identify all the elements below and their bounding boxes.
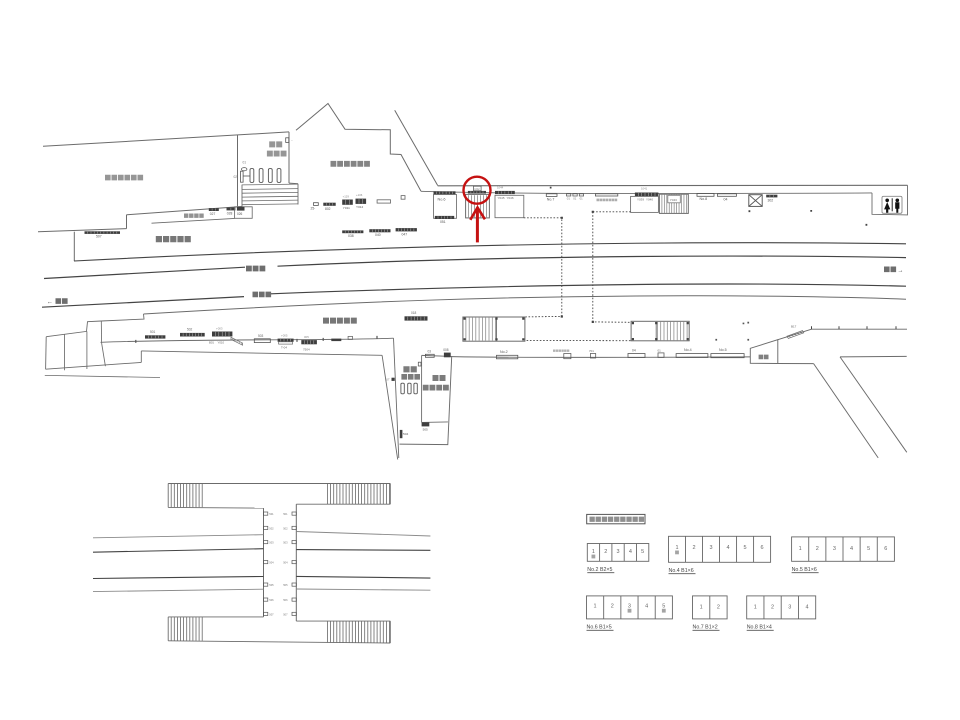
svg-text:2: 2 bbox=[692, 545, 695, 551]
svg-text:504: 504 bbox=[269, 561, 274, 565]
svg-text:302: 302 bbox=[768, 198, 774, 202]
svg-text:01: 01 bbox=[658, 348, 662, 352]
svg-text:502: 502 bbox=[269, 526, 274, 530]
svg-text:5: 5 bbox=[744, 545, 747, 551]
svg-text:No.6: No.6 bbox=[438, 198, 446, 202]
svg-text:1: 1 bbox=[754, 604, 757, 610]
svg-text:No.2: No.2 bbox=[500, 350, 508, 354]
svg-text:1: 1 bbox=[700, 604, 703, 610]
svg-text:506: 506 bbox=[269, 598, 274, 602]
svg-text:6: 6 bbox=[884, 546, 887, 552]
svg-text:4: 4 bbox=[629, 549, 632, 555]
svg-text:No.4 B1×6: No.4 B1×6 bbox=[669, 568, 694, 574]
svg-text:03: 03 bbox=[428, 350, 432, 354]
svg-text:503: 503 bbox=[283, 541, 288, 545]
svg-text:01: 01 bbox=[580, 197, 584, 201]
svg-text:505: 505 bbox=[423, 428, 428, 432]
svg-text:502: 502 bbox=[187, 328, 193, 332]
svg-text:505: 505 bbox=[269, 583, 274, 587]
svg-text:Y039: Y039 bbox=[637, 198, 644, 202]
svg-text:028: 028 bbox=[227, 211, 233, 215]
svg-text:504: 504 bbox=[283, 561, 288, 565]
svg-text:←: ← bbox=[47, 300, 53, 306]
svg-text:1: 1 bbox=[799, 546, 802, 552]
svg-text:1041: 1041 bbox=[641, 187, 648, 191]
svg-text:506: 506 bbox=[283, 598, 288, 602]
svg-text:Y045: Y045 bbox=[498, 196, 505, 200]
svg-text:01: 01 bbox=[243, 161, 247, 165]
svg-text:No.8: No.8 bbox=[700, 197, 708, 201]
svg-text:3: 3 bbox=[833, 546, 836, 552]
svg-text:25-: 25- bbox=[311, 207, 316, 211]
svg-text:005: 005 bbox=[304, 335, 309, 339]
svg-text:4: 4 bbox=[645, 603, 648, 609]
svg-text:008: 008 bbox=[443, 348, 449, 352]
svg-text:No.4: No.4 bbox=[684, 348, 692, 352]
svg-text:018: 018 bbox=[411, 311, 417, 315]
svg-text:3: 3 bbox=[710, 545, 713, 551]
svg-text:1: 1 bbox=[675, 545, 678, 551]
svg-text:051: 051 bbox=[440, 220, 446, 224]
svg-text:507: 507 bbox=[269, 612, 274, 616]
svg-text:7504: 7504 bbox=[303, 347, 310, 351]
svg-text:No.5: No.5 bbox=[719, 348, 727, 352]
svg-text:No.2 B2×5: No.2 B2×5 bbox=[587, 567, 612, 573]
svg-text:047: 047 bbox=[402, 232, 408, 236]
svg-text:026: 026 bbox=[237, 212, 243, 216]
svg-text:503: 503 bbox=[258, 334, 264, 338]
svg-text:No.7: No.7 bbox=[547, 198, 555, 202]
svg-text:4: 4 bbox=[727, 545, 730, 551]
svg-text:+106: +106 bbox=[356, 193, 363, 197]
svg-text:5: 5 bbox=[662, 603, 665, 609]
svg-text:501: 501 bbox=[269, 512, 274, 516]
svg-text:027: 027 bbox=[210, 212, 216, 216]
svg-text:B01: B01 bbox=[209, 340, 214, 344]
svg-text:505: 505 bbox=[283, 583, 288, 587]
svg-text:503: 503 bbox=[269, 541, 274, 545]
svg-text:2: 2 bbox=[611, 603, 614, 609]
svg-text:→: → bbox=[898, 268, 904, 274]
svg-text:701: 701 bbox=[589, 349, 594, 353]
svg-text:501: 501 bbox=[283, 512, 288, 516]
svg-text:501: 501 bbox=[150, 330, 156, 334]
svg-text:2: 2 bbox=[816, 546, 819, 552]
svg-text:No.7 B1×2: No.7 B1×2 bbox=[693, 625, 718, 631]
svg-text:1: 1 bbox=[594, 603, 597, 609]
svg-text:No.5 B1×6: No.5 B1×6 bbox=[792, 567, 817, 573]
svg-text:No.8 B1×4: No.8 B1×4 bbox=[747, 625, 772, 631]
svg-text:502: 502 bbox=[283, 526, 288, 530]
svg-text:04: 04 bbox=[632, 348, 636, 352]
svg-text:038: 038 bbox=[348, 234, 354, 238]
svg-text:B17: B17 bbox=[791, 325, 797, 329]
svg-text:1044: 1044 bbox=[497, 185, 504, 189]
svg-text:Y011: Y011 bbox=[343, 206, 350, 210]
svg-text:+003: +003 bbox=[216, 326, 223, 330]
svg-text:5: 5 bbox=[867, 546, 870, 552]
svg-text:No.6 B1×5: No.6 B1×5 bbox=[587, 625, 612, 631]
svg-text:504: 504 bbox=[403, 432, 408, 436]
svg-text:Y010: Y010 bbox=[218, 340, 225, 344]
svg-text:Y040: Y040 bbox=[646, 198, 653, 202]
svg-text:2: 2 bbox=[604, 549, 607, 555]
svg-text:T-04: T-04 bbox=[281, 346, 287, 350]
svg-text:507: 507 bbox=[96, 234, 102, 238]
svg-text:040: 040 bbox=[375, 233, 381, 237]
svg-text:1042: 1042 bbox=[474, 188, 480, 191]
svg-text:07: 07 bbox=[386, 378, 390, 382]
svg-text:Y043: Y043 bbox=[670, 198, 677, 202]
svg-text:3: 3 bbox=[617, 549, 620, 555]
svg-text:02: 02 bbox=[234, 175, 238, 179]
svg-text:01: 01 bbox=[567, 197, 571, 201]
svg-text:04: 04 bbox=[724, 198, 728, 202]
svg-text:4: 4 bbox=[806, 604, 809, 610]
svg-text:4: 4 bbox=[850, 546, 853, 552]
svg-text:01: 01 bbox=[573, 197, 577, 201]
svg-text:+129: +129 bbox=[343, 194, 350, 198]
svg-text:2: 2 bbox=[717, 604, 720, 610]
svg-text:6: 6 bbox=[761, 545, 764, 551]
svg-text:1: 1 bbox=[592, 549, 595, 555]
svg-text:2: 2 bbox=[771, 604, 774, 610]
svg-text:Y046: Y046 bbox=[507, 196, 514, 200]
svg-text:5: 5 bbox=[641, 549, 644, 555]
svg-text:Y012: Y012 bbox=[356, 205, 364, 209]
svg-text:3: 3 bbox=[788, 604, 791, 610]
svg-text:3: 3 bbox=[628, 603, 631, 609]
svg-text:802: 802 bbox=[325, 207, 331, 211]
svg-text:~: ~ bbox=[291, 139, 293, 143]
svg-text:507: 507 bbox=[283, 612, 288, 616]
svg-text:+005: +005 bbox=[281, 333, 288, 337]
